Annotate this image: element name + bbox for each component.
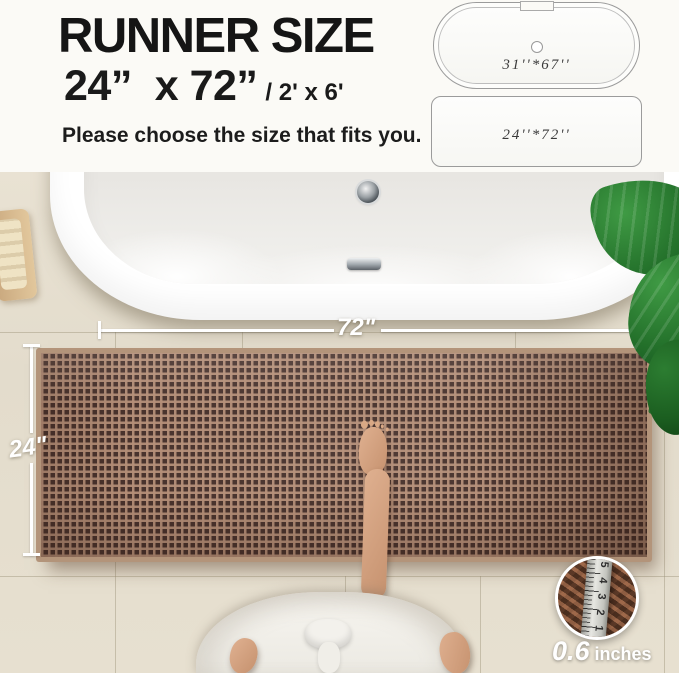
tile-grout-line <box>515 332 516 349</box>
width-dimension-label: 72" <box>337 314 375 342</box>
size-secondary-text: / 2' x 6' <box>257 79 343 106</box>
bathtub-drain-icon <box>531 41 543 53</box>
bathtub-overflow-fitting <box>347 258 381 270</box>
pile-height-inset-photo: 5 4 3 2 1 <box>555 556 639 640</box>
ruler-icon: 5 4 3 2 1 <box>580 556 613 640</box>
runner-outline-diagram: 24''*72'' <box>431 96 642 167</box>
pile-height-unit: inches <box>595 644 652 664</box>
width-dimension-endcap <box>98 321 101 339</box>
tile-grout-line <box>242 332 243 349</box>
height-dimension-label: 24" <box>7 431 49 464</box>
size-dimensions-text: 24” x 72”/ 2' x 6' <box>64 62 344 111</box>
ruler-number: 3 <box>595 590 608 603</box>
bathtub-faucet-notch <box>520 1 554 11</box>
width-dimension-line <box>381 329 660 332</box>
bathtub-drain <box>357 181 379 203</box>
bathtub-size-label: 31''*67'' <box>434 57 639 74</box>
pile-height-value: 0.6 <box>552 636 590 666</box>
height-dimension-line <box>30 345 33 433</box>
pile-height-caption: 0.6inches <box>552 636 679 667</box>
height-dimension-endcap <box>23 553 40 556</box>
ruler-number: 4 <box>596 574 609 587</box>
ruler-number: 1 <box>592 622 605 635</box>
rolled-towel <box>0 218 27 290</box>
towel-tray <box>0 208 38 302</box>
height-dimension-endcap <box>23 344 40 347</box>
runner-rug <box>36 348 652 562</box>
product-size-guide-image: RUNNER SIZE 24” x 72”/ 2' x 6' Please ch… <box>0 0 679 673</box>
size-primary-text: 24” x 72” <box>64 62 257 110</box>
leg <box>361 469 391 600</box>
rug-shading <box>41 353 647 557</box>
bathroom-photo: 72" 24" 5 4 3 2 1 0.6i <box>0 172 679 673</box>
height-dimension-line <box>30 463 33 555</box>
ruler-number: 5 <box>598 558 611 571</box>
width-dimension-line <box>100 329 334 332</box>
tile-grout-line <box>480 576 481 673</box>
bathtub-outline-diagram: 31''*67'' <box>433 2 640 89</box>
choose-size-subtitle: Please choose the size that fits you. <box>62 124 421 148</box>
ruler-number: 2 <box>593 606 606 619</box>
bare-foot-on-rug <box>358 427 388 476</box>
robe-belt-tail <box>318 642 340 673</box>
runner-size-title: RUNNER SIZE <box>58 8 374 64</box>
runner-size-label: 24''*72'' <box>432 127 641 144</box>
